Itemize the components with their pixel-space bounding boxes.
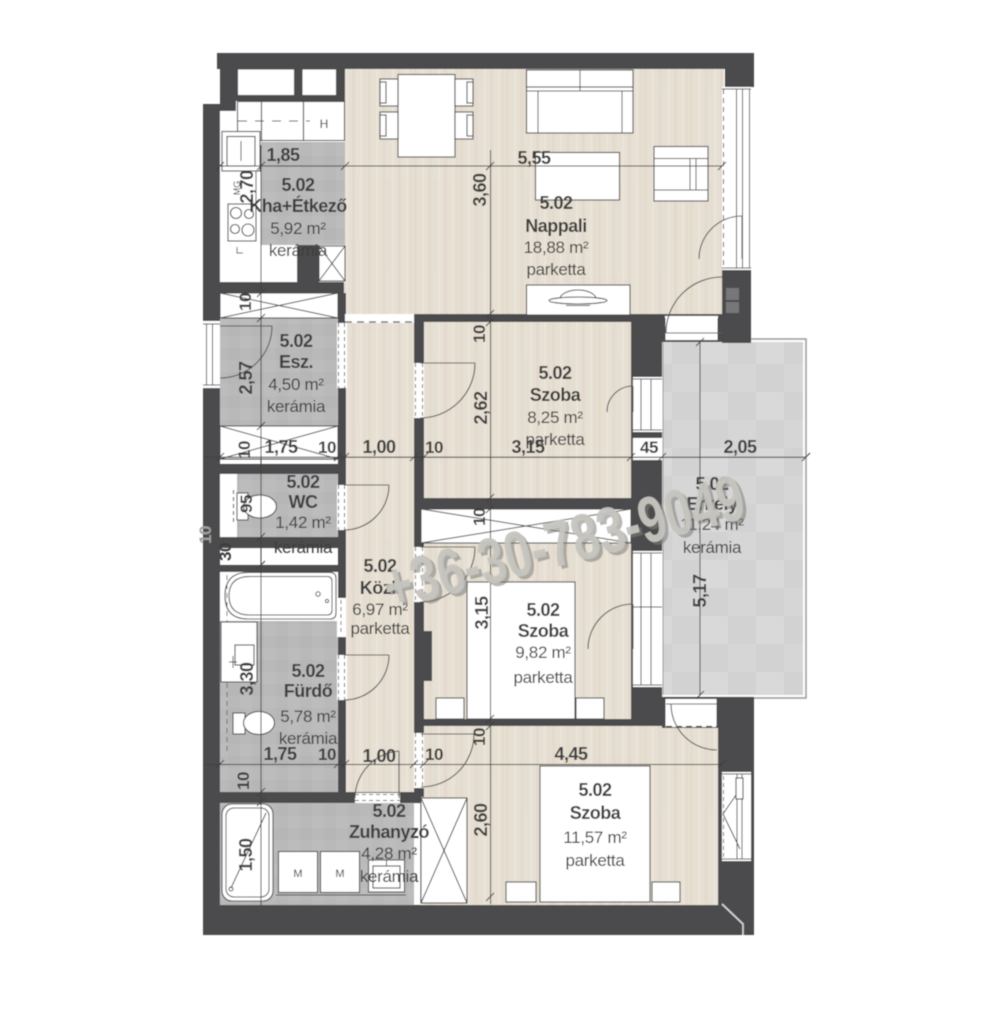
svg-text:Fürdő: Fürdő (284, 681, 333, 701)
svg-text:1,00: 1,00 (362, 437, 396, 457)
svg-text:18,88 m²: 18,88 m² (524, 238, 589, 257)
svg-text:10: 10 (234, 772, 253, 790)
svg-text:5.02: 5.02 (286, 472, 320, 492)
svg-text:Kha+Étkező: Kha+Étkező (249, 195, 347, 216)
svg-text:10: 10 (196, 526, 215, 544)
svg-text:Szoba: Szoba (518, 621, 570, 641)
svg-text:Szoba: Szoba (570, 803, 622, 823)
svg-text:10: 10 (425, 438, 443, 457)
svg-text:kerámia: kerámia (279, 729, 338, 748)
svg-text:parketta: parketta (525, 430, 585, 449)
svg-text:parketta: parketta (526, 260, 586, 279)
svg-text:30: 30 (216, 543, 235, 561)
svg-text:1,75: 1,75 (264, 437, 298, 457)
svg-text:3,60: 3,60 (470, 173, 490, 207)
svg-text:5.02: 5.02 (279, 331, 313, 351)
svg-text:Esz.: Esz. (279, 352, 313, 372)
svg-text:5.02: 5.02 (281, 175, 315, 195)
svg-text:H: H (320, 117, 329, 131)
svg-text:5.02: 5.02 (539, 193, 573, 213)
svg-text:Szoba: Szoba (530, 385, 582, 405)
svg-text:kerámia: kerámia (267, 397, 326, 416)
svg-text:M: M (293, 868, 302, 880)
svg-text:9,82 m²: 9,82 m² (515, 643, 571, 662)
svg-text:10: 10 (470, 728, 489, 746)
svg-text:parketta: parketta (513, 668, 573, 687)
svg-text:10: 10 (318, 438, 336, 457)
svg-text:10: 10 (235, 441, 254, 459)
svg-text:M: M (335, 868, 344, 880)
svg-text:5.02: 5.02 (526, 600, 560, 620)
svg-text:5.02: 5.02 (372, 801, 406, 821)
svg-text:WC: WC (289, 492, 318, 512)
svg-text:5,55: 5,55 (517, 148, 551, 168)
svg-text:kerámia: kerámia (274, 538, 333, 557)
svg-text:2,60: 2,60 (471, 803, 491, 837)
svg-text:1,00: 1,00 (362, 746, 396, 766)
svg-text:kerámia: kerámia (360, 867, 419, 886)
svg-text:2,62: 2,62 (471, 391, 491, 425)
svg-text:5.02: 5.02 (578, 780, 612, 800)
svg-text:Nappali: Nappali (525, 216, 587, 236)
svg-text:10: 10 (425, 745, 443, 764)
svg-text:5.02: 5.02 (538, 363, 572, 383)
svg-text:2,57: 2,57 (236, 361, 256, 395)
svg-text:5.02: 5.02 (291, 661, 325, 681)
svg-text:1,42 m²: 1,42 m² (275, 513, 331, 532)
svg-text:kerámia: kerámia (269, 241, 328, 260)
svg-text:4,50 m²: 4,50 m² (268, 375, 324, 394)
svg-text:45: 45 (640, 438, 658, 457)
svg-text:Zuhanyzó: Zuhanyzó (349, 822, 430, 842)
svg-text:10: 10 (236, 293, 255, 311)
svg-text:11,57 m²: 11,57 m² (563, 828, 627, 847)
svg-text:parketta: parketta (565, 851, 625, 870)
svg-text:4,28 m²: 4,28 m² (361, 844, 417, 863)
svg-text:1,85: 1,85 (266, 145, 300, 165)
svg-text:2,05: 2,05 (723, 437, 757, 457)
svg-text:5,17: 5,17 (690, 574, 710, 608)
svg-text:3,30: 3,30 (237, 662, 257, 696)
svg-text:1,50: 1,50 (236, 838, 256, 872)
svg-text:10: 10 (470, 508, 489, 526)
svg-text:MG: MG (232, 181, 242, 196)
svg-text:95: 95 (237, 495, 256, 513)
svg-text:4,45: 4,45 (554, 744, 588, 764)
svg-text:5,92 m²: 5,92 m² (270, 219, 326, 238)
svg-text:8,25 m²: 8,25 m² (527, 408, 583, 427)
svg-text:5,78 m²: 5,78 m² (280, 707, 336, 726)
svg-text:10: 10 (470, 325, 489, 343)
